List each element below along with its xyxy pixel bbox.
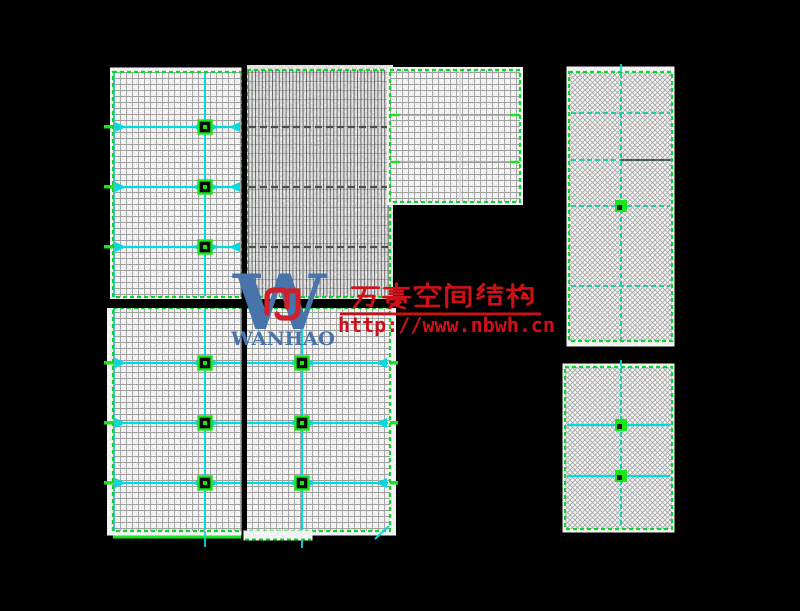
node-square-core	[300, 361, 304, 365]
panel-mesh	[390, 70, 520, 202]
node-square-core	[300, 481, 304, 485]
panel-mesh	[113, 72, 242, 297]
structure-upper-left	[104, 72, 250, 297]
structure-upper-right	[390, 70, 520, 202]
node-square-core	[617, 424, 622, 429]
structure-right-top	[569, 72, 672, 341]
node-square-core	[203, 185, 207, 189]
edge-tick	[104, 481, 113, 485]
cad-canvas: WWANHAO万豪空间结构http://www.nbwh.cn	[0, 0, 800, 611]
edge-tick	[390, 481, 398, 485]
watermark-url: http://www.nbwh.cn	[338, 313, 555, 337]
node-square-core	[203, 125, 207, 129]
node-square-core	[203, 245, 207, 249]
edge-tick	[104, 125, 113, 129]
node-square-core	[203, 361, 207, 365]
edge-tick	[104, 421, 113, 425]
panel-mesh	[565, 367, 672, 529]
edge-tick	[104, 361, 113, 365]
edge-tick	[104, 185, 113, 189]
node-square-core	[203, 481, 207, 485]
watermark-company-text: 万豪空间结构	[349, 281, 529, 316]
edge-tick	[104, 245, 113, 249]
node-square-core	[617, 475, 622, 480]
logo-wordmark: WANHAO	[230, 328, 335, 350]
structure-right-bottom	[565, 367, 672, 529]
structure-drawing: WWANHAO万豪空间结构http://www.nbwh.cn	[0, 0, 800, 611]
node-square-core	[300, 421, 304, 425]
node-square-core	[203, 421, 207, 425]
edge-tick	[390, 421, 398, 425]
watermark: WWANHAO万豪空间结构http://www.nbwh.cn	[230, 258, 555, 350]
node-square-core	[617, 205, 622, 210]
edge-tick	[390, 361, 398, 365]
